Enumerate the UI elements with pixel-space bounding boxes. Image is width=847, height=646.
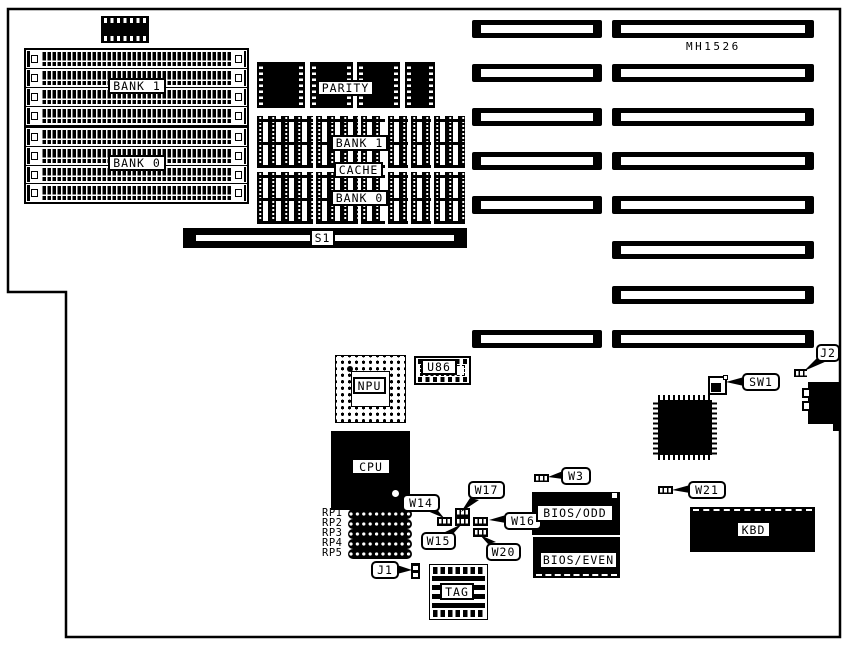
simm-bank0-label: BANK 0	[108, 155, 166, 171]
w15-jumper	[455, 517, 470, 526]
simm-latch-icon	[234, 129, 246, 145]
isa-slot-4	[612, 152, 814, 170]
isa-slot-2	[612, 64, 814, 82]
simm-latch-icon	[27, 108, 39, 124]
motherboard-diagram: MH1526 BANK 1 BANK 0 PARITY	[0, 0, 847, 646]
sram-chip	[257, 116, 313, 168]
isa-slot-ext-1	[472, 20, 602, 38]
simm-contacts	[41, 130, 232, 144]
isa-slot-8	[612, 330, 814, 348]
w3-callout: W3	[561, 467, 591, 485]
rp4-pack	[348, 539, 412, 549]
simm-bank1-label: BANK 1	[108, 78, 166, 94]
bios-odd-label: BIOS/ODD	[536, 504, 614, 522]
simm-latch-icon	[27, 129, 39, 145]
keyboard-din-connector	[808, 382, 841, 424]
w17-callout: W17	[468, 481, 505, 499]
simm-latch-icon	[234, 148, 246, 164]
rom-dashed-edge	[536, 574, 617, 576]
sram-chip	[388, 116, 408, 168]
sram-chip	[434, 172, 465, 224]
simm-latch-icon	[27, 70, 39, 86]
din-mount-tab	[802, 388, 811, 398]
j1-leader	[397, 565, 412, 574]
isa-slot-5	[612, 196, 814, 214]
cache-bank0-label: BANK 0	[331, 190, 388, 206]
simm-contacts	[41, 109, 232, 123]
simm-latch-icon	[27, 185, 39, 201]
parity-label: PARITY	[317, 80, 374, 96]
isa-slot-7	[612, 286, 814, 304]
qfp-chip	[653, 395, 717, 460]
cache-label: CACHE	[334, 162, 383, 178]
cache-bank1-label: BANK 1	[331, 135, 388, 151]
dip-chip	[101, 16, 149, 43]
cpu-label: CPU	[351, 458, 391, 475]
parity-chip	[405, 62, 435, 108]
cpu-pin-dot-icon	[391, 489, 400, 498]
j2-jumper	[794, 369, 807, 377]
simm-contacts	[41, 186, 232, 200]
simm-latch-icon	[27, 89, 39, 105]
w16-jumper	[473, 517, 488, 526]
simm-latch-icon	[27, 148, 39, 164]
simm-latch-icon	[27, 51, 39, 67]
rom-notch-icon	[612, 493, 617, 498]
u86-label: U86	[421, 359, 457, 375]
sram-chip	[388, 172, 408, 224]
w21-callout: W21	[688, 481, 726, 499]
simm-socket	[25, 127, 248, 147]
simm-latch-icon	[234, 167, 246, 183]
simm-latch-icon	[234, 70, 246, 86]
sw1-notch-icon	[723, 375, 728, 380]
w15-callout: W15	[421, 532, 456, 550]
simm-contacts	[41, 52, 232, 66]
j1-callout: J1	[371, 561, 399, 579]
isa-slot-1	[612, 20, 814, 38]
din-mount-tab	[802, 401, 811, 411]
isa-slot-ext-8	[472, 330, 602, 348]
w3-jumper	[534, 474, 549, 482]
simm-socket	[25, 106, 248, 126]
kbd-label: KBD	[736, 521, 771, 538]
w21-jumper	[658, 486, 673, 494]
s1-label: S1	[310, 229, 335, 247]
sw1-callout: SW1	[742, 373, 780, 391]
npu-label: NPU	[353, 377, 386, 394]
isa-slot-3	[612, 108, 814, 126]
w20-jumper	[473, 528, 488, 537]
sram-chip	[411, 116, 431, 168]
w14-callout: W14	[402, 494, 440, 512]
simm-socket	[25, 183, 248, 203]
sram-chip	[257, 172, 313, 224]
isa-slot-ext-5	[472, 196, 602, 214]
parity-chip	[257, 62, 305, 108]
tag-label: TAG	[440, 583, 474, 600]
keyboard-din-connector-step	[833, 420, 841, 431]
isa-slot-ext-2	[472, 64, 602, 82]
kbd-dashed-edge	[693, 509, 812, 511]
isa-slot-ext-4	[472, 152, 602, 170]
simm-socket	[25, 49, 248, 69]
sw1-switch-position	[711, 383, 721, 392]
w14-jumper	[437, 517, 452, 526]
isa-slot-ext-3	[472, 108, 602, 126]
board-model-label: MH1526	[686, 40, 741, 53]
simm-latch-icon	[234, 51, 246, 67]
simm-latch-icon	[234, 185, 246, 201]
rp2-pack	[348, 519, 412, 529]
simm-latch-icon	[234, 108, 246, 124]
sram-chip	[434, 116, 465, 168]
rp3-pack	[348, 529, 412, 539]
simm-latch-icon	[234, 89, 246, 105]
isa-slot-6	[612, 241, 814, 259]
j1-jumper	[411, 563, 420, 579]
w17-jumper	[455, 508, 470, 517]
simm-latch-icon	[27, 167, 39, 183]
bios-even-label: BIOS/EVEN	[539, 551, 618, 569]
w20-callout: W20	[486, 543, 521, 561]
sw1-switch	[708, 376, 727, 395]
j2-callout: J2	[816, 344, 840, 362]
rp5-label: RP5	[322, 548, 342, 558]
rp5-pack	[348, 549, 412, 559]
sram-chip	[411, 172, 431, 224]
